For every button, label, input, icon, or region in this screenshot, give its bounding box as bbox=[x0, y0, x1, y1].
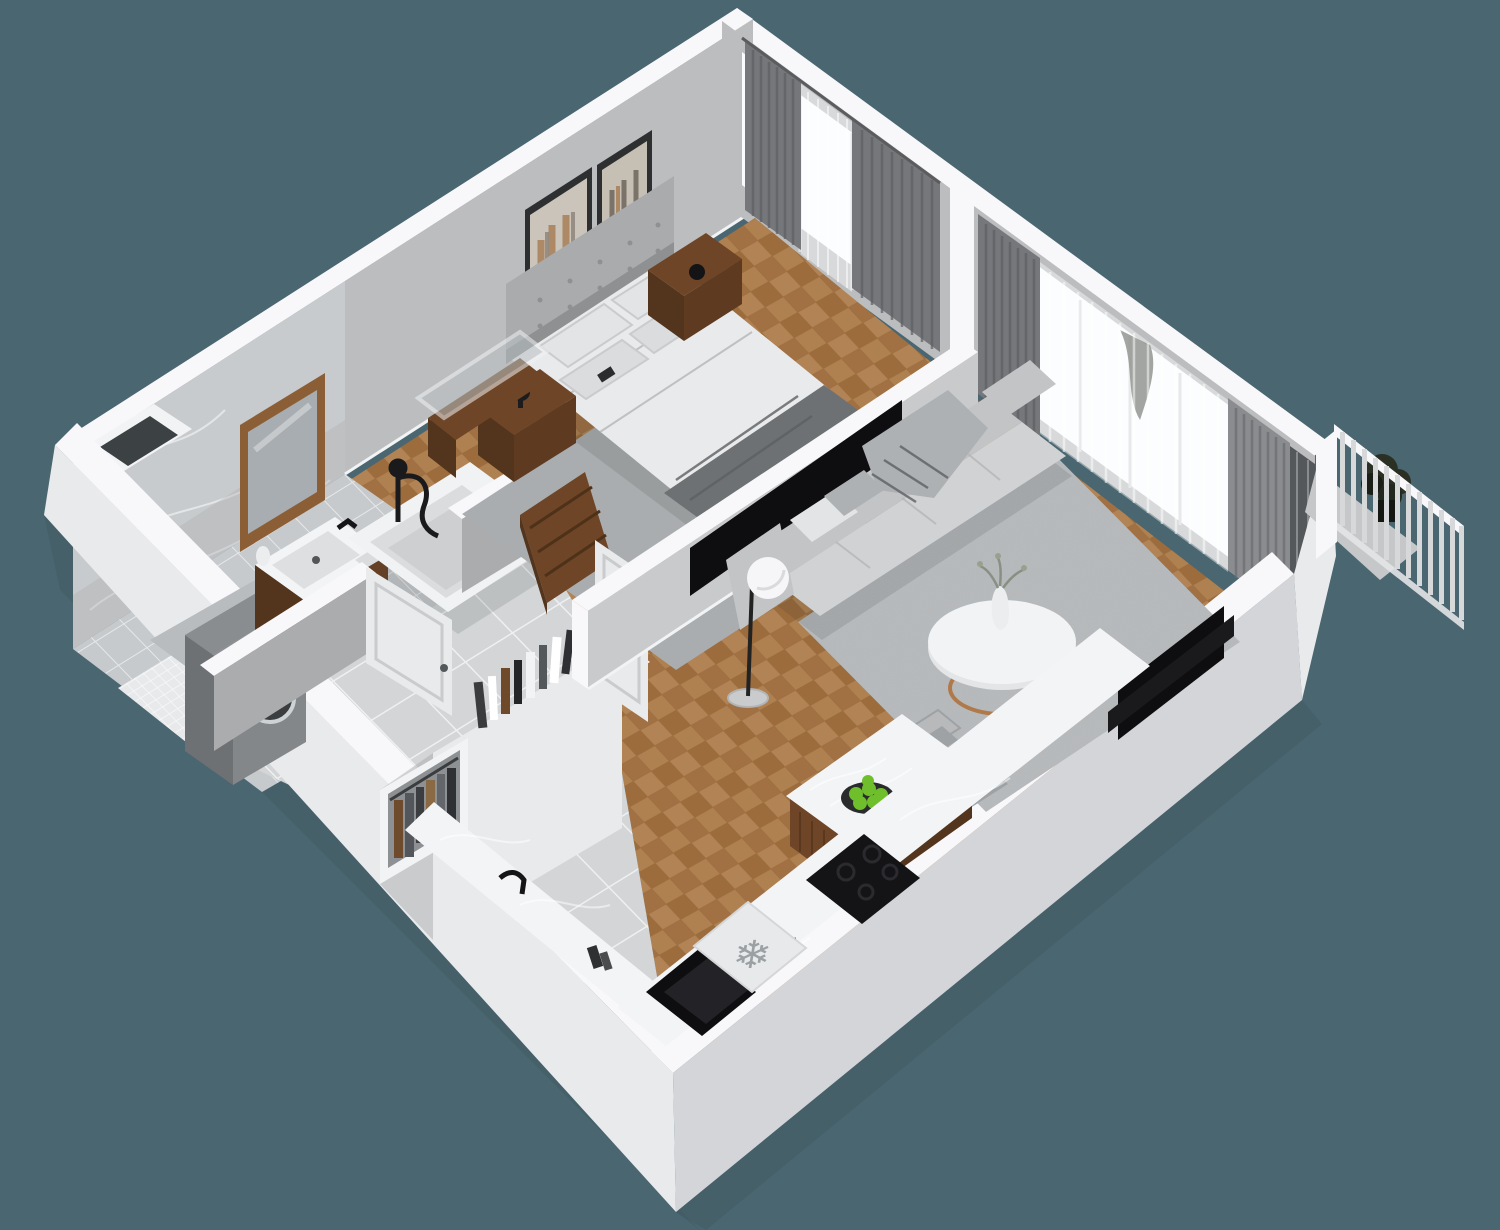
nightstand-decor bbox=[689, 264, 705, 280]
soap-bottle bbox=[256, 546, 270, 566]
door-handle bbox=[440, 664, 448, 672]
snowflake-icon: ❄ bbox=[729, 933, 775, 978]
balcony-wall-return bbox=[1316, 429, 1337, 559]
floor-plan-svg: ❄ bbox=[0, 0, 1500, 1230]
floor-plan-image: ❄ bbox=[0, 0, 1500, 1230]
